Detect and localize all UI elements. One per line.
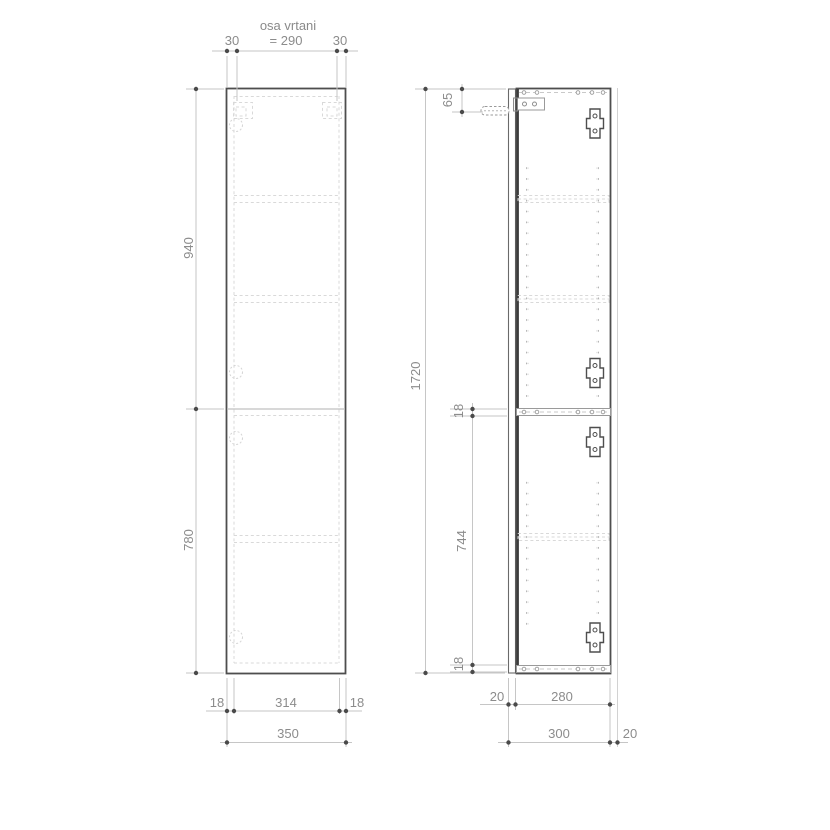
dowel	[576, 91, 580, 95]
drill-axis-right-label: 30	[333, 33, 347, 48]
hinge-screw	[593, 114, 597, 118]
hanger-rail	[481, 107, 509, 116]
front-inner-right-label: 18	[350, 695, 364, 710]
dowel	[576, 667, 580, 671]
dowel	[522, 91, 526, 95]
body-depth-label: 280	[551, 689, 573, 704]
dim-front-bottom: 18 314 18 350	[206, 678, 364, 747]
dim-total-height: 1720	[408, 87, 506, 675]
dowel	[601, 91, 605, 95]
side-mid-shelf	[517, 409, 611, 416]
dowel	[535, 91, 539, 95]
dowel	[522, 667, 526, 671]
wall-gap-label: 20	[623, 726, 637, 741]
mid-shelf-thickness-label: 18	[451, 404, 466, 418]
front-inner-left-label: 18	[210, 695, 224, 710]
hinge-screw	[593, 364, 597, 368]
drill-axis-title: osa vrtani	[260, 18, 316, 33]
pinholes-upper-front-column	[526, 160, 529, 403]
dowel	[535, 667, 539, 671]
dowel	[576, 410, 580, 414]
front-total-width-label: 350	[277, 726, 299, 741]
dim-side-bottom: 20 280 300 20	[480, 678, 637, 747]
dowel	[590, 667, 594, 671]
front-cabinet-outline	[227, 89, 346, 674]
dim-lower-section: 18 744 18	[450, 403, 507, 674]
front-lower-height-label: 780	[181, 529, 196, 551]
hinge-screw	[593, 433, 597, 437]
door-thickness-label: 20	[490, 689, 504, 704]
front-view	[227, 89, 346, 674]
top-offset-label: 65	[440, 93, 455, 107]
pinholes-lower-back-column	[596, 475, 599, 630]
dowel	[522, 410, 526, 414]
pinholes-lower-front-column	[526, 475, 529, 630]
total-height-label: 1720	[408, 362, 423, 391]
total-depth-label: 300	[548, 726, 570, 741]
dowel	[601, 410, 605, 414]
dowel	[590, 410, 594, 414]
technical-drawing-canvas: osa vrtani = 290 30 30 940 780 1720	[0, 0, 830, 830]
hinge-screw	[593, 628, 597, 632]
lower-inner-height-label: 744	[454, 530, 469, 552]
front-upper-height-label: 940	[181, 237, 196, 259]
hanger-plate	[514, 98, 545, 111]
dowel	[535, 410, 539, 414]
side-bottom-panel	[517, 666, 611, 673]
side-door-slab	[509, 89, 516, 673]
dowel	[590, 91, 594, 95]
drill-axis-left-label: 30	[225, 33, 239, 48]
hinge-screw	[593, 379, 597, 383]
hinge-screw	[593, 643, 597, 647]
drill-axis-span-label: = 290	[270, 33, 303, 48]
dim-front-heights: 940 780	[181, 87, 224, 675]
cabinet-drawing: osa vrtani = 290 30 30 940 780 1720	[0, 0, 830, 830]
dowel	[601, 667, 605, 671]
bottom-thickness-label: 18	[451, 657, 466, 671]
hinge-screw	[593, 448, 597, 452]
side-view	[481, 88, 618, 747]
front-inner-width-label: 314	[275, 695, 297, 710]
hinge-screw	[593, 129, 597, 133]
